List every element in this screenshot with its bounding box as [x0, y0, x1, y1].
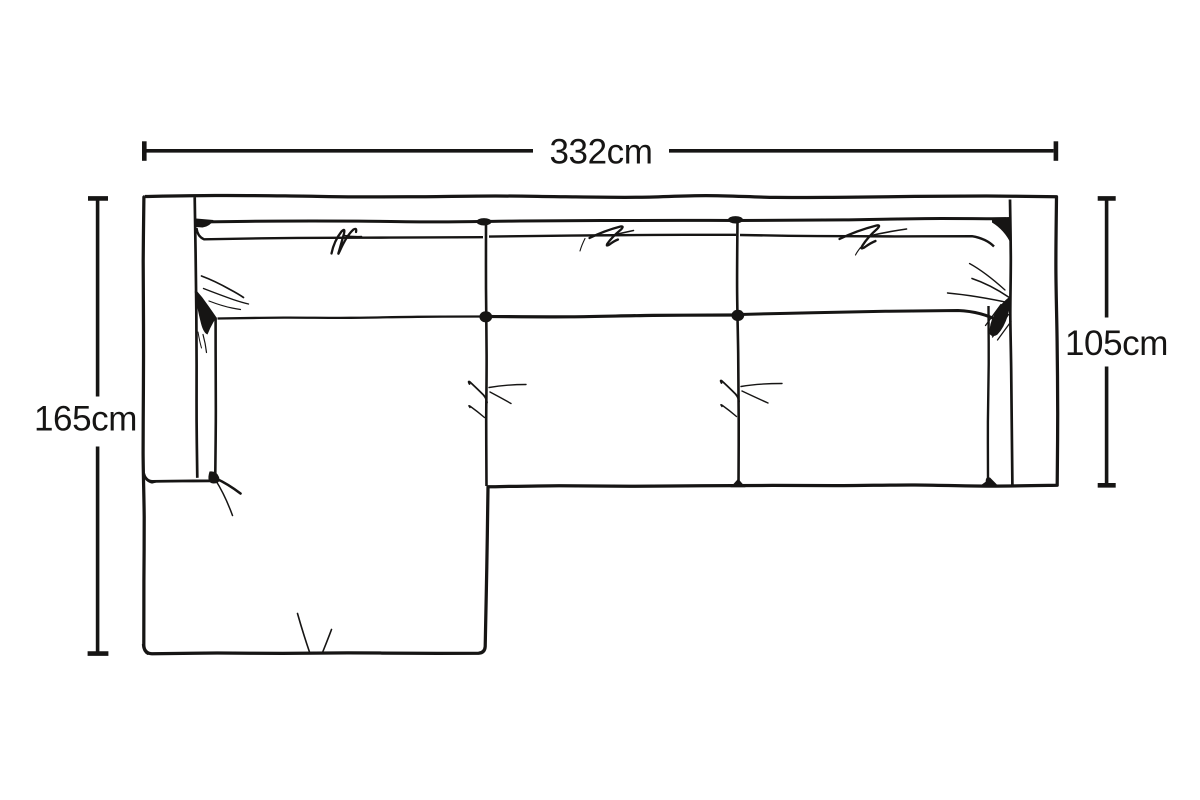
svg-text:105cm: 105cm	[1065, 324, 1168, 363]
svg-text:165cm: 165cm	[34, 400, 137, 439]
svg-text:332cm: 332cm	[549, 133, 652, 172]
